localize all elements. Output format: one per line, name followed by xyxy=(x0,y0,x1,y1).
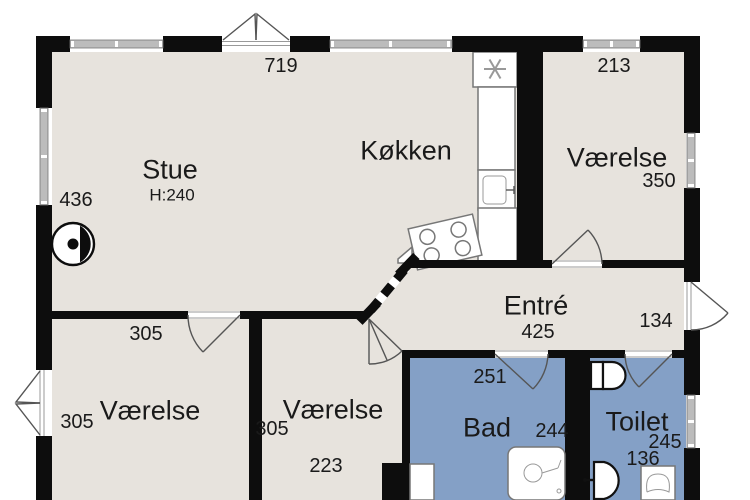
dimension-s-width: 223 xyxy=(309,456,342,476)
washbasin-icon xyxy=(641,466,675,500)
entrance-door xyxy=(684,282,728,330)
window xyxy=(70,40,163,48)
room-label-bad: Bad xyxy=(463,415,511,442)
dimension-bad-width: 251 xyxy=(473,367,506,387)
kitchen-sink-icon xyxy=(478,170,515,210)
toilet-icon xyxy=(591,362,626,389)
dimension-toilet-width: 136 xyxy=(626,449,659,469)
kitchen-cabinet-icon xyxy=(478,87,515,170)
room-label-vaerelse-s: Værelse xyxy=(283,397,384,424)
french-door-west xyxy=(16,370,52,436)
dimension-west-height: 436 xyxy=(59,190,92,210)
room-label-kokken: Køkken xyxy=(360,138,452,165)
shower-icon xyxy=(508,447,565,500)
floor-layer xyxy=(52,52,686,500)
stue-ceiling-height: H:240 xyxy=(149,187,194,204)
dimension-entre-depth: 134 xyxy=(639,311,672,331)
dimension-ne-width: 213 xyxy=(597,56,630,76)
dimension-sw-depth: 305 xyxy=(60,412,93,432)
french-door-north xyxy=(222,14,290,52)
cabinet-icon xyxy=(410,464,434,500)
room-label-entre: Entré xyxy=(504,293,569,320)
kitchen-counter-icon xyxy=(478,208,517,262)
dimension-sw-width: 305 xyxy=(129,324,162,344)
room-label-stue: Stue xyxy=(142,157,198,184)
dimension-top-width: 719 xyxy=(264,56,297,76)
window xyxy=(330,40,452,48)
window xyxy=(687,395,695,448)
dimension-bad-depth: 244 xyxy=(535,421,568,441)
window xyxy=(687,133,695,188)
room-label-vaerelse-ne: Værelse xyxy=(567,145,668,172)
room-label-vaerelse-sw: Værelse xyxy=(100,398,201,425)
window xyxy=(583,40,640,48)
floor-plan: 719 213 Stue H:240 Køkken Værelse 350 43… xyxy=(0,0,750,500)
dimension-entre-width: 425 xyxy=(521,322,554,342)
dimension-ne-depth: 350 xyxy=(642,171,675,191)
window xyxy=(40,108,48,205)
wood-stove-icon xyxy=(52,223,94,265)
